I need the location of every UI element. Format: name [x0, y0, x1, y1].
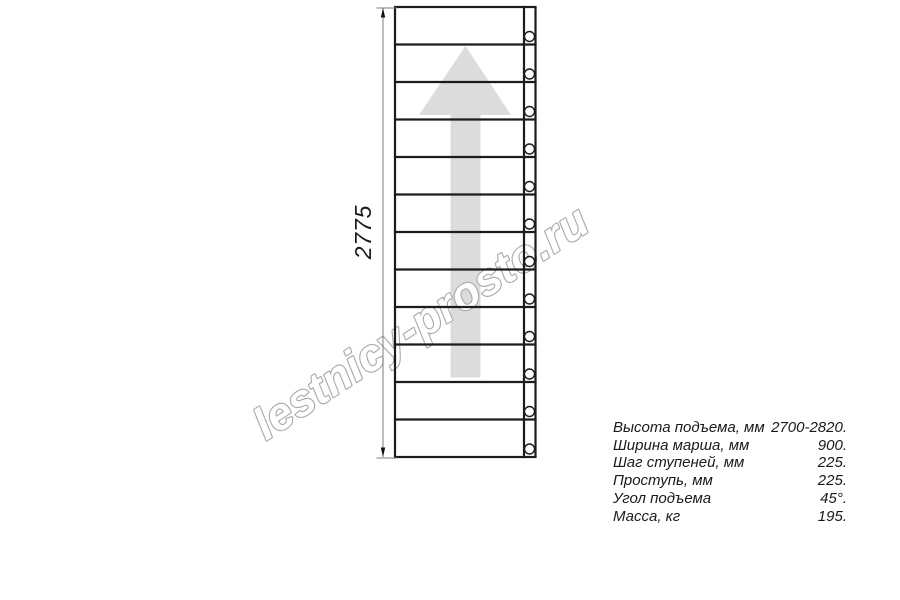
dimension-value-label: 2775	[350, 205, 376, 260]
bolt-circle	[525, 182, 535, 192]
spec-label: Угол подъема	[613, 490, 711, 508]
bolt-circle	[525, 69, 535, 79]
bolt-circle	[525, 144, 535, 154]
bolt-circle	[525, 407, 535, 417]
spec-row: Шаг ступеней, мм225.	[613, 454, 847, 472]
dimension-arrowhead-bottom	[381, 448, 385, 458]
spec-label: Ширина марша, мм	[613, 437, 749, 455]
spec-label: Высота подъема, мм	[613, 419, 765, 437]
spec-value: 225.	[818, 454, 847, 472]
bolt-circle	[525, 294, 535, 304]
bolt-circle	[525, 257, 535, 267]
spec-value: 195.	[818, 508, 847, 526]
spec-table: Высота подъема, мм2700-2820.Ширина марша…	[613, 419, 847, 525]
spec-value: 2700-2820.	[771, 419, 847, 437]
spec-value: 900.	[818, 437, 847, 455]
stair-drawing-page: lestnicy-prosto.ru 2775 Высота подъема, …	[0, 0, 900, 600]
bolt-circle	[525, 332, 535, 342]
spec-label: Масса, кг	[613, 508, 680, 526]
bolt-circle	[525, 219, 535, 229]
bolt-circle	[525, 32, 535, 42]
spec-row: Ширина марша, мм900.	[613, 437, 847, 455]
spec-label: Шаг ступеней, мм	[613, 454, 744, 472]
spec-value: 45°.	[820, 490, 847, 508]
dimension-arrowhead-top	[381, 8, 385, 18]
spec-label: Проступь, мм	[613, 472, 713, 490]
spec-value: 225.	[818, 472, 847, 490]
bolt-circle	[525, 107, 535, 117]
spec-row: Угол подъема45°.	[613, 490, 847, 508]
bolt-circle	[525, 444, 535, 454]
bolt-circle	[525, 369, 535, 379]
spec-row: Высота подъема, мм2700-2820.	[613, 419, 847, 437]
spec-row: Масса, кг195.	[613, 508, 847, 526]
spec-row: Проступь, мм225.	[613, 472, 847, 490]
